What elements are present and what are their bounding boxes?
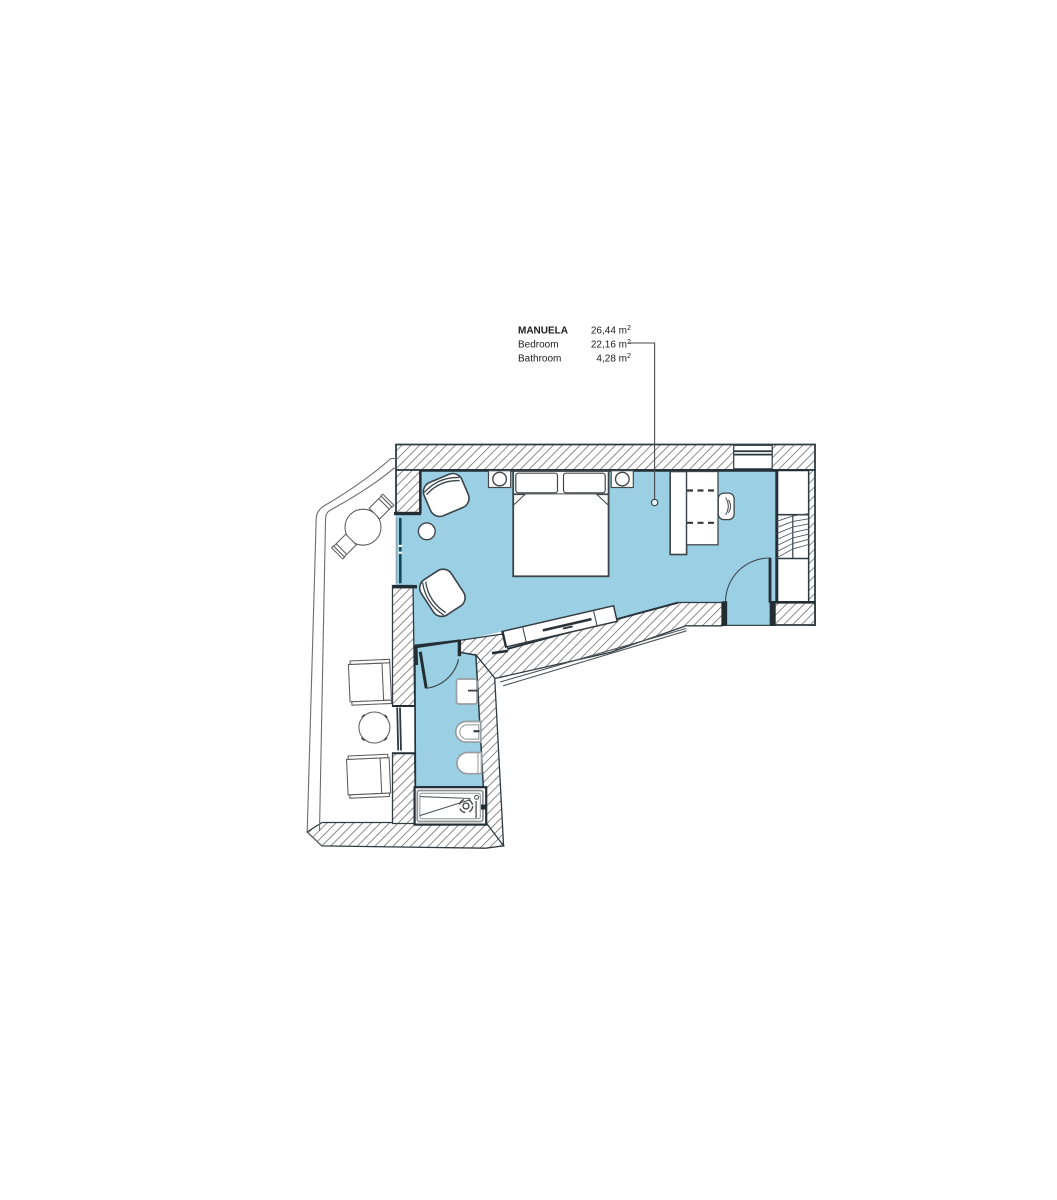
svg-text:MANUELA: MANUELA — [518, 325, 568, 336]
svg-text:26,44 m2: 26,44 m2 — [591, 323, 631, 336]
svg-text:22,16 m2: 22,16 m2 — [591, 337, 631, 350]
svg-text:4,28 m2: 4,28 m2 — [596, 351, 631, 364]
svg-text:Bathroom: Bathroom — [518, 353, 561, 364]
svg-text:Bedroom: Bedroom — [518, 339, 559, 350]
